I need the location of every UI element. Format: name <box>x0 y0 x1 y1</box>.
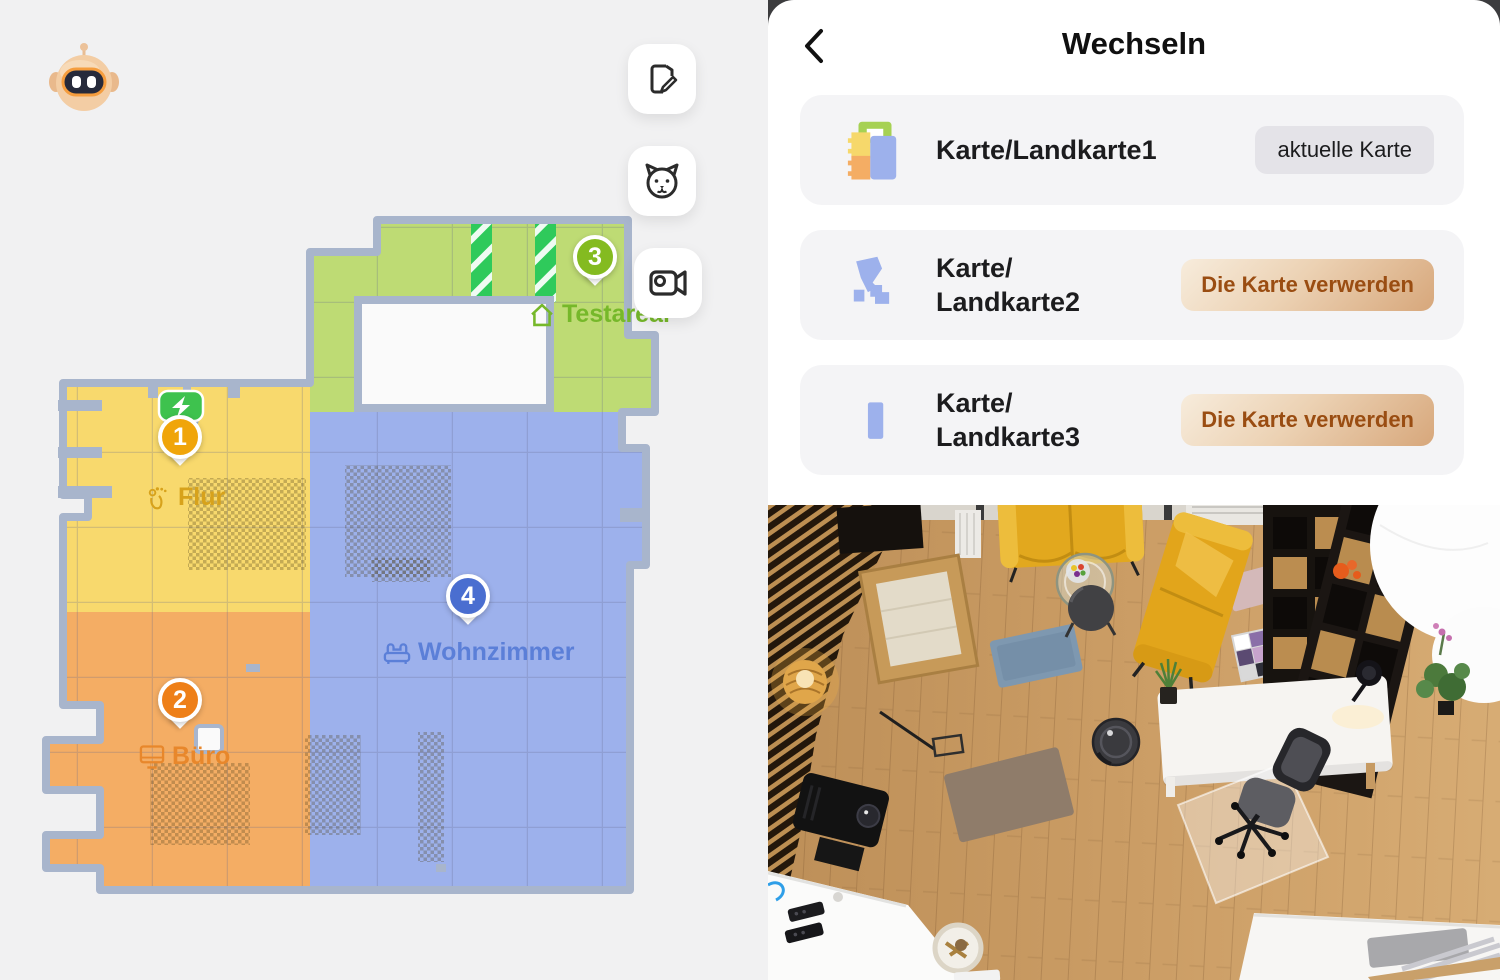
sofa-icon <box>382 639 412 667</box>
map-pane: Flur Büro Testareal Wohnzi <box>0 0 768 980</box>
marker-number: 2 <box>173 686 187 715</box>
wooden-platform <box>860 555 978 683</box>
map-name-line: Karte/ <box>936 386 1080 420</box>
map-name-line: Karte/ <box>936 251 1080 285</box>
map-name-line: Landkarte3 <box>936 420 1080 454</box>
map-name: Karte/Landkarte1 <box>936 133 1157 167</box>
footprints-icon <box>146 484 172 512</box>
map-card-2[interactable]: Karte/ Landkarte2 Die Karte verwerden <box>800 230 1464 340</box>
page-title: Wechseln <box>768 26 1500 62</box>
room-marker-4[interactable]: 4 <box>446 574 490 626</box>
map-name: Karte/ Landkarte2 <box>936 251 1080 319</box>
round-basket <box>935 925 981 971</box>
map-name-line: Landkarte2 <box>936 285 1080 319</box>
sheet-header: Wechseln <box>768 0 1500 90</box>
map-name-line: Karte/Landkarte1 <box>936 133 1157 167</box>
marker-number: 3 <box>588 243 602 272</box>
home-icon <box>528 301 556 329</box>
edit-map-icon <box>643 60 681 98</box>
room-name: Büro <box>172 742 230 771</box>
map-card-3[interactable]: Karte/ Landkarte3 Die Karte verwerden <box>800 365 1464 475</box>
camera-button[interactable] <box>634 248 702 318</box>
map-name: Karte/ Landkarte3 <box>936 386 1080 454</box>
robot-vacuum <box>1093 719 1139 765</box>
dark-cabinet <box>836 505 923 554</box>
map-switch-sheet: Wechseln Karte/Landkarte1 <box>768 0 1500 505</box>
room-marker-3[interactable]: 3 <box>573 235 617 287</box>
camera-view-photo <box>768 505 1500 980</box>
map-card-1[interactable]: Karte/Landkarte1 aktuelle Karte <box>800 95 1464 205</box>
robot-mascot-icon[interactable] <box>48 40 120 116</box>
map-hole <box>358 300 550 408</box>
map1-thumbnail <box>842 117 908 183</box>
room-marker-1[interactable]: 1 <box>158 415 202 467</box>
video-camera-icon <box>646 263 690 303</box>
desk-leg <box>1366 763 1375 789</box>
room-label-wohnzimmer: Wohnzimmer <box>382 638 575 667</box>
desk-leg <box>1166 777 1175 797</box>
map-switch-panel: Wechseln Karte/Landkarte1 <box>768 0 1500 980</box>
room-name: Flur <box>178 483 225 512</box>
pendant-lamp <box>771 648 839 716</box>
current-map-badge: aktuelle Karte <box>1255 126 1434 174</box>
room-label-buero: Büro <box>138 742 230 771</box>
pet-mode-button[interactable] <box>628 146 696 216</box>
room-name: Wohnzimmer <box>418 638 575 667</box>
pet-face-icon <box>641 161 683 201</box>
map2-thumbnail <box>842 252 908 318</box>
marker-number: 1 <box>173 423 187 452</box>
monitor-icon <box>138 743 166 771</box>
use-map-button[interactable]: Die Karte verwerden <box>1181 259 1434 311</box>
map3-thumbnail <box>842 387 908 453</box>
edit-map-button[interactable] <box>628 44 696 114</box>
room-marker-2[interactable]: 2 <box>158 678 202 730</box>
app-window: Flur Büro Testareal Wohnzi <box>0 0 1500 980</box>
room-label-flur: Flur <box>146 483 225 512</box>
marker-number: 4 <box>461 582 475 611</box>
use-map-button[interactable]: Die Karte verwerden <box>1181 394 1434 446</box>
